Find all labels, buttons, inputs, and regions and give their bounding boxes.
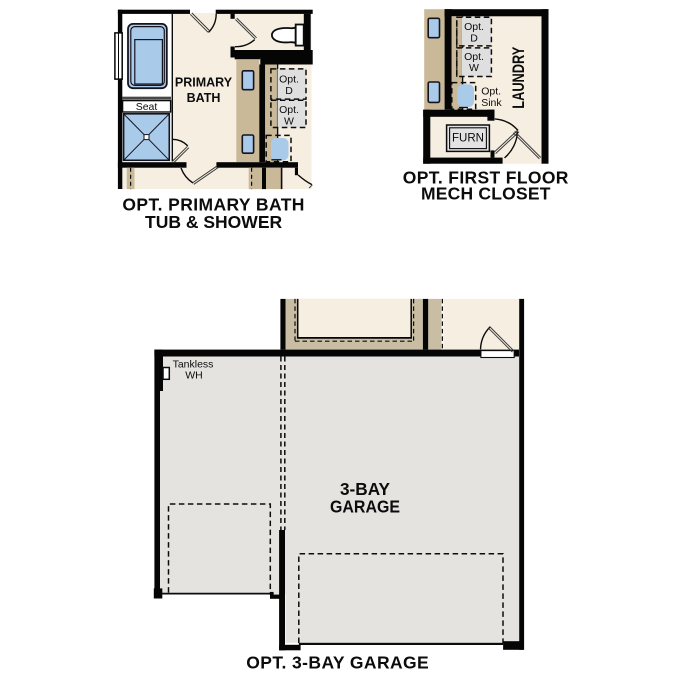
svg-text:OPT. 3-BAY GARAGE: OPT. 3-BAY GARAGE [246,653,429,673]
svg-text:Opt.: Opt. [481,86,501,98]
svg-text:MECH CLOSET: MECH CLOSET [421,184,551,204]
svg-text:WH: WH [185,369,203,381]
svg-text:FURN: FURN [452,132,484,144]
svg-text:Sink: Sink [481,97,502,109]
svg-text:Opt.: Opt. [464,21,484,33]
svg-text:TUB & SHOWER: TUB & SHOWER [145,212,282,232]
svg-text:W: W [469,62,479,74]
svg-text:D: D [285,85,293,97]
svg-text:BATH: BATH [187,91,221,105]
svg-text:Opt.: Opt. [279,104,299,116]
svg-text:W: W [284,116,294,128]
svg-text:D: D [470,32,478,44]
svg-text:PRIMARY: PRIMARY [175,76,233,90]
svg-text:Seat: Seat [136,101,158,113]
svg-text:Opt.: Opt. [279,73,299,85]
svg-text:LAUNDRY: LAUNDRY [509,46,528,108]
svg-text:GARAGE: GARAGE [330,497,400,517]
